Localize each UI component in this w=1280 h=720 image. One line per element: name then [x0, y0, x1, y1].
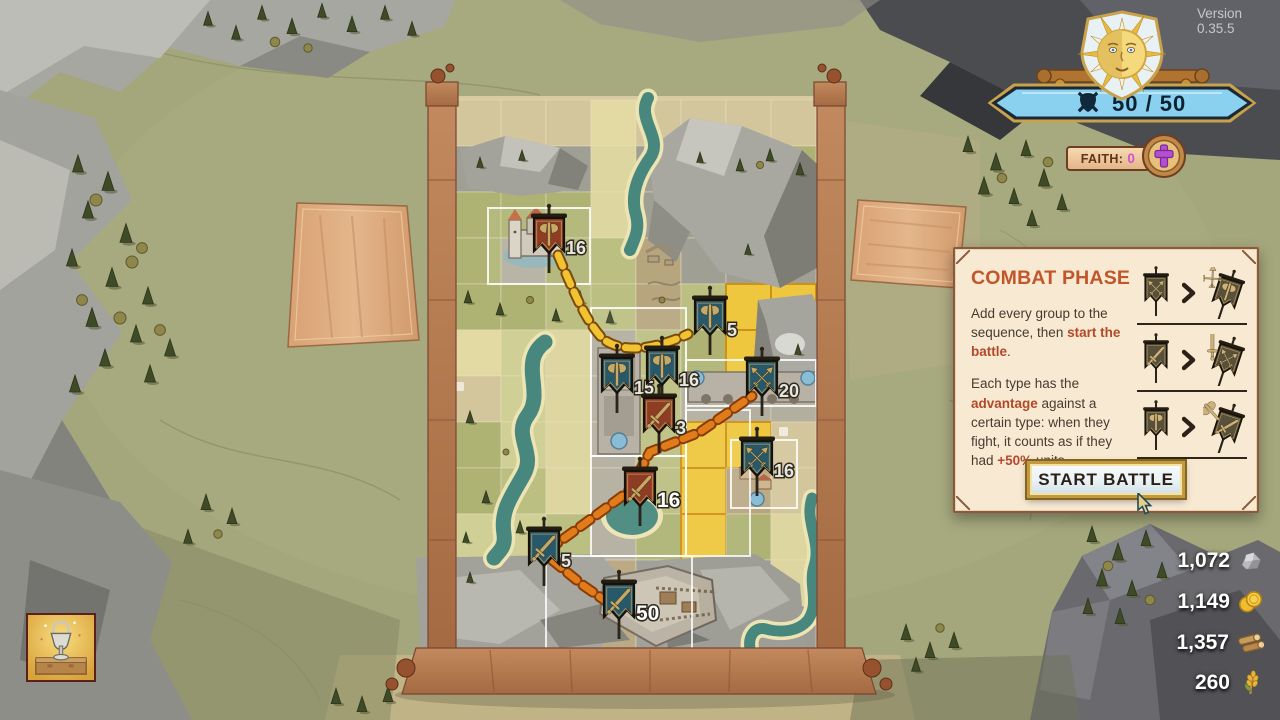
resource-wheat: 260: [1195, 669, 1264, 696]
flag-unit-count: 5: [561, 551, 571, 571]
flag-unit-count: 16: [566, 238, 586, 258]
axe-banner-icon: [1137, 399, 1175, 455]
resource-stone: 1,072: [1177, 547, 1264, 574]
combat-phase-panel: COMBAT PHASE Add every group to the sequ…: [953, 247, 1259, 513]
wheat-count: 260: [1195, 671, 1230, 695]
flag-unit-count: 16: [657, 489, 680, 512]
ranged-banner-defeated-icon: [1203, 334, 1247, 386]
event-tile[interactable]: [26, 613, 96, 682]
faith-value: 0: [1127, 151, 1135, 166]
start-battle-label: START BATTLE: [1038, 470, 1174, 489]
flag-unit-count: 50: [636, 602, 659, 625]
flag-unit-count: 16: [774, 461, 794, 481]
flag-unit-count: 16: [679, 370, 699, 390]
faith-bar: FAITH: 0: [1066, 146, 1150, 171]
type-advantage-chart: [1137, 263, 1247, 483]
ranged-banner-icon: [1137, 265, 1175, 321]
faith-label: FAITH:: [1081, 152, 1124, 166]
resource-wood: 1,357: [1176, 629, 1264, 657]
flag-unit-count: 3: [676, 418, 686, 438]
start-battle-button[interactable]: START BATTLE: [1027, 461, 1185, 498]
advantage-chevron-icon: [1182, 349, 1196, 371]
wheat-icon: [1237, 669, 1264, 696]
flag-unit-count: 5: [727, 320, 737, 340]
stone-icon: [1237, 547, 1264, 574]
game-board[interactable]: 16515163201616550: [386, 64, 892, 694]
arrow-cursor: [1135, 493, 1155, 517]
crossed-sword-shield-icon: [1078, 92, 1099, 113]
panel-title: COMBAT PHASE: [971, 267, 1131, 290]
wood-count: 1,357: [1176, 631, 1229, 655]
advantage-row-axe-beats-sword: [1137, 399, 1247, 459]
panel-paragraph-1: Add every group to the sequence, then st…: [971, 304, 1131, 361]
trophy-event-icon: [30, 616, 92, 678]
advantage-chevron-icon: [1182, 416, 1196, 438]
game-screen: { "version_label": "Version 0.35.5", "hu…: [0, 0, 1280, 720]
sword-banner-icon: [1137, 332, 1175, 388]
faith-medallion: [1141, 132, 1189, 180]
sword-banner-defeated-icon: [1203, 401, 1247, 453]
panel-paragraph-2: Each type has the advantage against a ce…: [971, 374, 1131, 470]
resource-gold: 1,149: [1177, 588, 1264, 615]
axe-banner-defeated-icon: [1203, 267, 1247, 319]
gold-coins-icon: [1237, 588, 1264, 615]
stone-count: 1,072: [1177, 549, 1230, 573]
wood-logs-icon: [1236, 629, 1264, 657]
flag-unit-count: 20: [779, 381, 799, 401]
advantage-row-ranged-beats-axe: [1137, 265, 1247, 325]
gold-count: 1,149: [1177, 590, 1230, 614]
advantage-chevron-icon: [1182, 282, 1196, 304]
advantage-row-sword-beats-ranged: [1137, 332, 1247, 392]
